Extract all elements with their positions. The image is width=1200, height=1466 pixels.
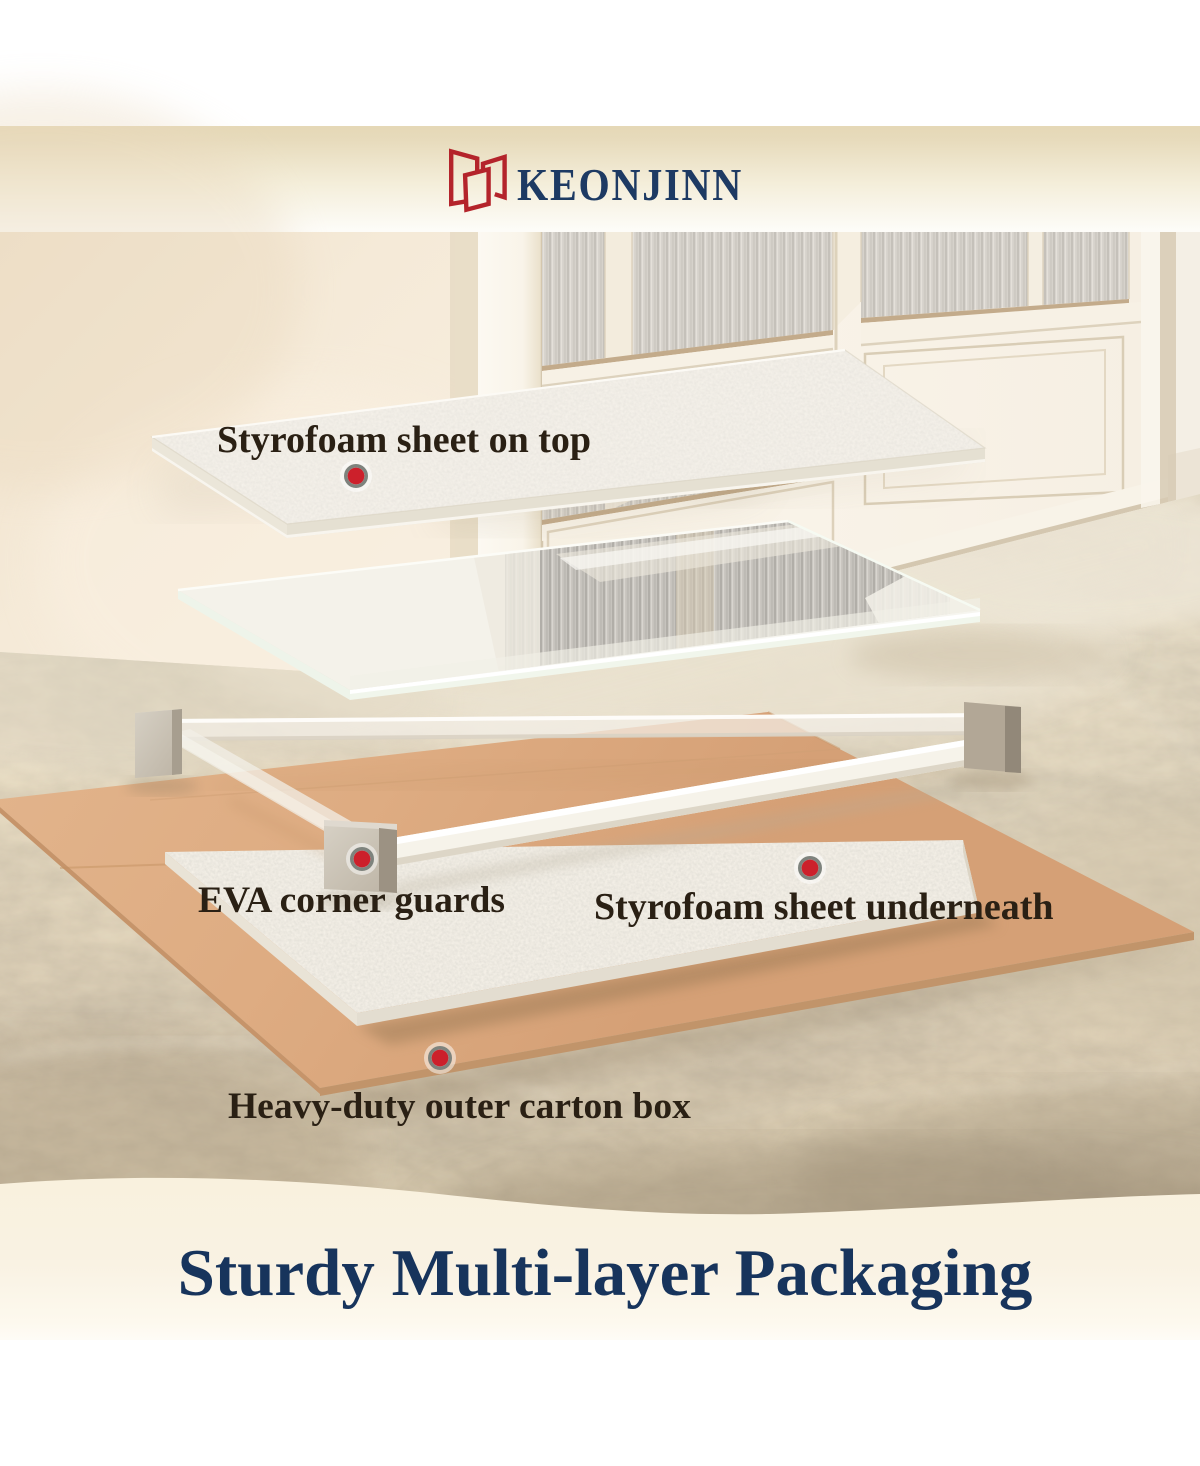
svg-text:Styrofoam sheet on top: Styrofoam sheet on top xyxy=(217,419,591,461)
svg-text:Styrofoam sheet underneath: Styrofoam sheet underneath xyxy=(594,886,1054,928)
svg-text:EVA corner guards: EVA corner guards xyxy=(198,880,505,921)
svg-text:Heavy-duty outer carton box: Heavy-duty outer carton box xyxy=(228,1086,691,1127)
svg-text:KEONJINN: KEONJINN xyxy=(517,159,743,210)
svg-text:Sturdy Multi-layer Packaging: Sturdy Multi-layer Packaging xyxy=(178,1236,1033,1310)
